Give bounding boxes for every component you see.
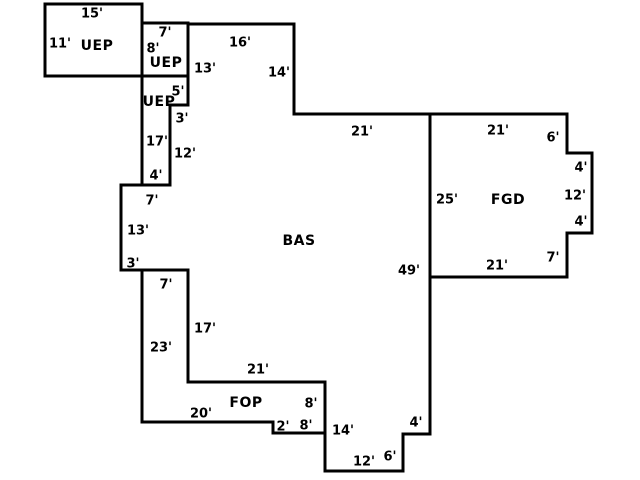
area-label-fop: FOP — [229, 395, 262, 411]
dimension-label-fop-1: 23' — [150, 341, 172, 356]
floorplan-container: UEP15'11'UEP7'8'UEP5'17'4'BAS13'16'14'21… — [0, 0, 640, 480]
dimension-label-uep-2-1: 8' — [146, 42, 159, 57]
dimension-label-fop-3: 8' — [304, 397, 317, 412]
dimension-label-fgd-5: 4' — [574, 215, 587, 230]
dimension-label-bas-9: 17' — [194, 322, 216, 337]
area-label-uep-1: UEP — [81, 38, 114, 54]
dimension-label-fgd-2: 4' — [574, 161, 587, 176]
sketch-background — [0, 0, 640, 480]
dimension-label-fop-4: 2' — [276, 420, 289, 435]
floorplan-sketch: UEP15'11'UEP7'8'UEP5'17'4'BAS13'16'14'21… — [0, 0, 640, 480]
dimension-label-fgd-7: 21' — [486, 259, 508, 274]
dimension-label-bas-14: 6' — [383, 450, 396, 465]
dimension-label-bas-13: 4' — [409, 416, 422, 431]
dimension-label-bas-15: 12' — [353, 455, 375, 470]
dimension-label-uep-3-0: 5' — [171, 85, 184, 100]
area-label-bas: BAS — [282, 233, 315, 249]
dimension-label-bas-3: 21' — [351, 125, 373, 140]
dimension-label-bas-0: 13' — [194, 62, 216, 77]
area-label-uep-2: UEP — [150, 55, 183, 71]
dimension-label-uep-1-0: 15' — [81, 7, 103, 22]
dimension-label-fgd-0: 21' — [487, 124, 509, 139]
area-label-fgd: FGD — [491, 192, 525, 208]
dimension-label-fop-2: 20' — [190, 407, 212, 422]
dimension-label-uep-3-2: 4' — [149, 169, 162, 184]
dimension-label-bas-6: 7' — [145, 194, 158, 209]
dimension-label-uep-1-1: 11' — [49, 37, 71, 52]
dimension-label-bas-2: 14' — [268, 66, 290, 81]
dimension-label-fgd-6: 7' — [546, 251, 559, 266]
dimension-label-bas-5: 12' — [174, 147, 196, 162]
dimension-label-bas-4: 3' — [175, 112, 188, 127]
dimension-label-bas-11: 49' — [398, 264, 420, 279]
dimension-label-bas-1: 16' — [229, 36, 251, 51]
dimension-label-bas-7: 13' — [127, 224, 149, 239]
dimension-label-fgd-3: 25' — [436, 193, 458, 208]
dimension-label-fop-0: 7' — [159, 278, 172, 293]
dimension-label-bas-12: 14' — [332, 424, 354, 439]
area-label-uep-3: UEP — [143, 94, 176, 110]
dimension-label-fgd-4: 12' — [564, 189, 586, 204]
dimension-label-bas-8: 3' — [126, 257, 139, 272]
dimension-label-uep-3-1: 17' — [146, 135, 168, 150]
dimension-label-fop-5: 8' — [299, 419, 312, 434]
dimension-label-bas-10: 21' — [247, 363, 269, 378]
dimension-label-fgd-1: 6' — [546, 131, 559, 146]
dimension-label-uep-2-0: 7' — [158, 26, 171, 41]
